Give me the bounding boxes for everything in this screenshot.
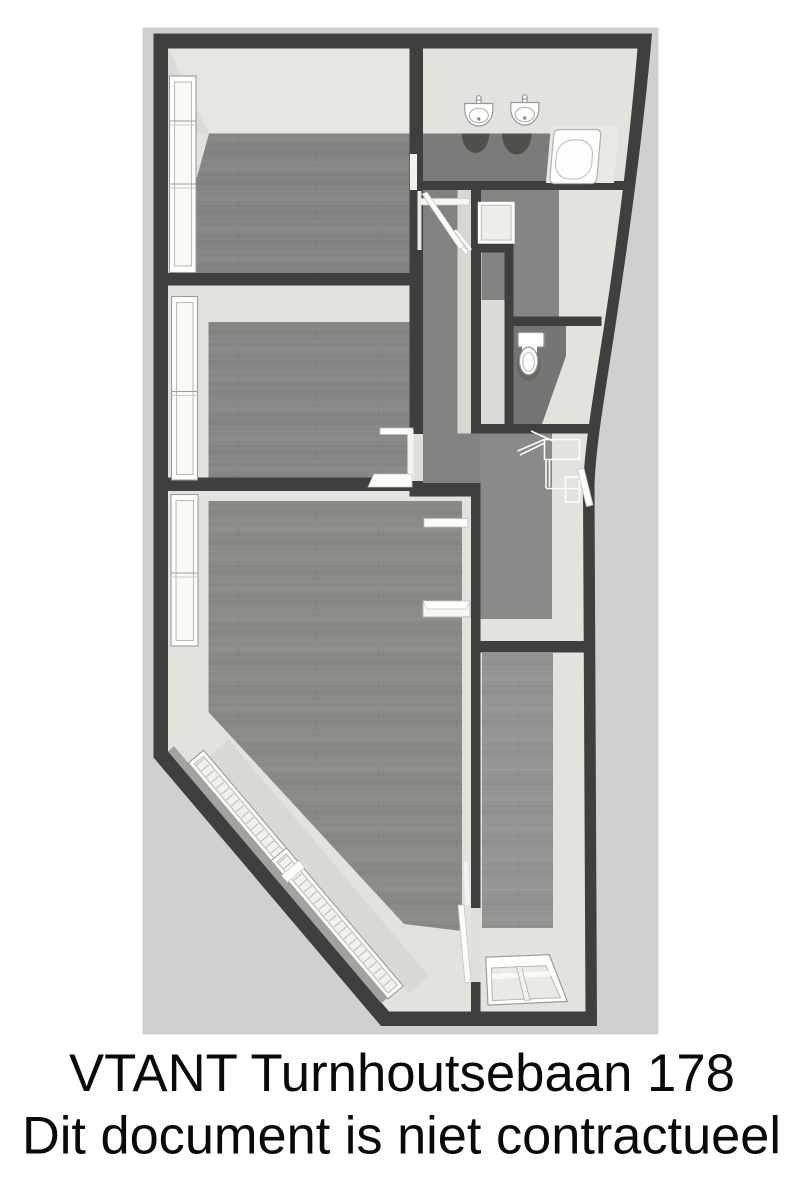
svg-text:Dit document is niet contractu: Dit document is niet contractueel bbox=[22, 1107, 781, 1166]
svg-text:VTANT Turnhoutsebaan 178: VTANT Turnhoutsebaan 178 bbox=[69, 1044, 735, 1103]
